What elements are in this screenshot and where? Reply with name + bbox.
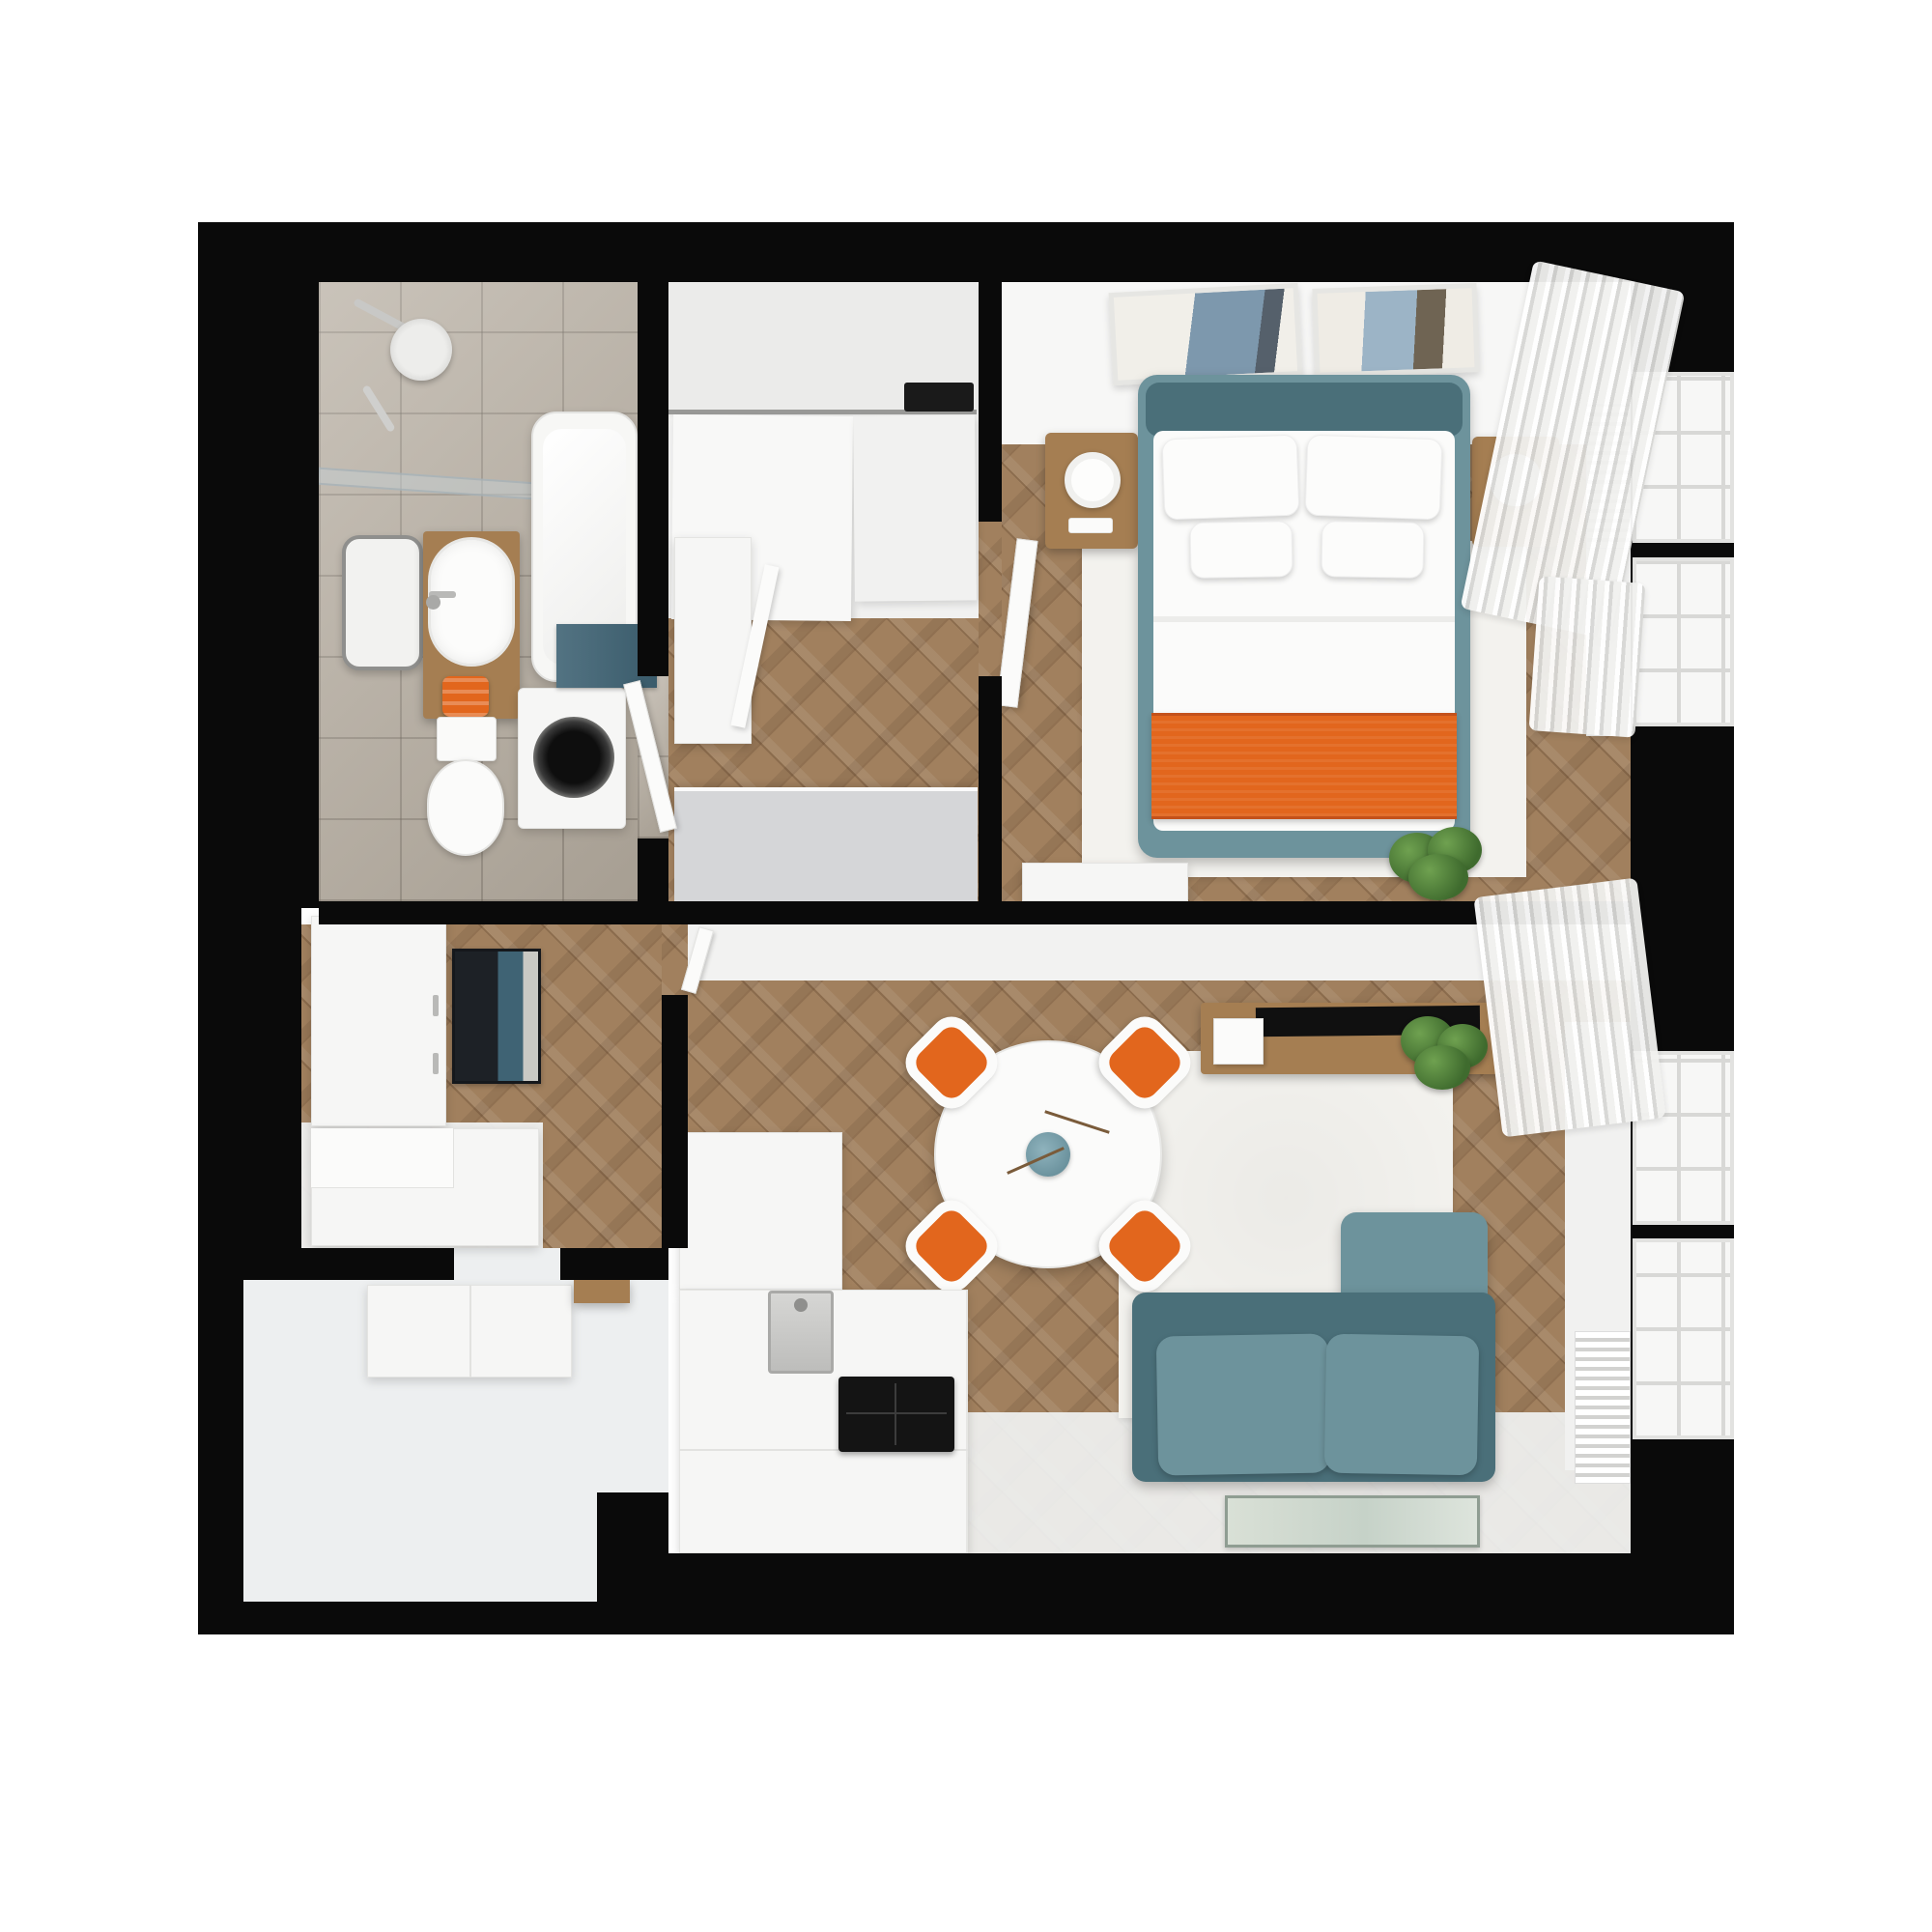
storage-door-floor [454,1248,560,1280]
wall-outer-top [198,222,1734,282]
wall-dressing-bedroom-bot [979,676,1002,924]
storage-door-frame [574,1280,630,1303]
lamp-left [1065,452,1121,508]
entry-bench-step [311,1128,454,1188]
door-mechanism [904,383,974,412]
window-panes [1636,1242,1730,1435]
cooktop-cross-h [846,1412,947,1414]
orange-blanket [1151,713,1457,819]
sofa-seat-right [1324,1334,1479,1476]
wall-bath-dressing-bot [638,838,668,908]
sink-faucet-kitchen [794,1298,808,1312]
toilet-flush-plate [437,717,497,761]
bedroom-door-floor [979,522,1002,676]
entry-wardrobe-cabinet [311,916,446,1126]
bedroom-window-lower [1633,557,1734,726]
vanity-sink [428,537,515,667]
living-window-lower [1633,1238,1734,1439]
bedroom-dresser [1022,863,1188,901]
wall-outer-left-b [198,908,301,1248]
entry-doormat [452,949,541,1084]
wall-entry-living [662,995,688,1248]
bedroom-curtain-lower [1529,576,1646,737]
entry-cabinet-handle-b [433,1053,439,1074]
bedroom-plant-leaf-c [1408,854,1468,900]
orange-towels [442,676,489,717]
sofa-seat-left [1156,1333,1330,1475]
wall-outer-notch [597,1492,668,1634]
pillow-large-left [1162,435,1300,521]
wall-art-left [1109,283,1303,385]
floor-plan-render [0,0,1932,1932]
living-plant-leaf-c [1414,1045,1470,1090]
window-panes [1636,561,1730,723]
shower-head [390,319,452,381]
wall-entry-storage-b [560,1248,668,1280]
bed-headboard [1146,383,1463,437]
storage-floor-right [597,1280,668,1492]
washing-machine-drum [533,717,614,798]
sink-faucet-base [426,595,440,610]
wall-entry-storage-a [243,1248,454,1280]
framed-floor-mat [1225,1495,1480,1548]
pillow-small-left [1190,521,1293,579]
wall-horizontal-mid [668,901,979,924]
wall-art-right [1312,283,1479,378]
pillow-small-right [1321,521,1425,579]
wall-outer-left-c [198,1248,243,1634]
living-curtain [1473,878,1665,1138]
wardrobe-door-panel-b [853,414,977,601]
entry-closet [674,787,978,901]
entry-cabinet-handle-a [433,995,439,1016]
black-cooktop [838,1377,954,1452]
pillow-large-right [1305,435,1443,521]
toilet-bowl [427,759,504,856]
wall-mirror [342,535,423,670]
kitchen-tall-cabinet [679,1132,842,1290]
cooktop-cross-v [895,1383,896,1445]
wall-horizontal-bath [319,901,668,924]
wall-outer-left-a [198,222,319,908]
console-magazines [1213,1018,1264,1065]
wall-outer-bottom-b [668,1553,1734,1634]
living-radiator [1575,1331,1631,1484]
storage-cabinet-seam [469,1285,471,1378]
wall-bath-dressing-top [638,282,668,676]
duvet-fold [1153,616,1455,622]
nightstand-left-tray [1068,518,1113,533]
wall-dressing-bedroom-top [979,282,1002,522]
